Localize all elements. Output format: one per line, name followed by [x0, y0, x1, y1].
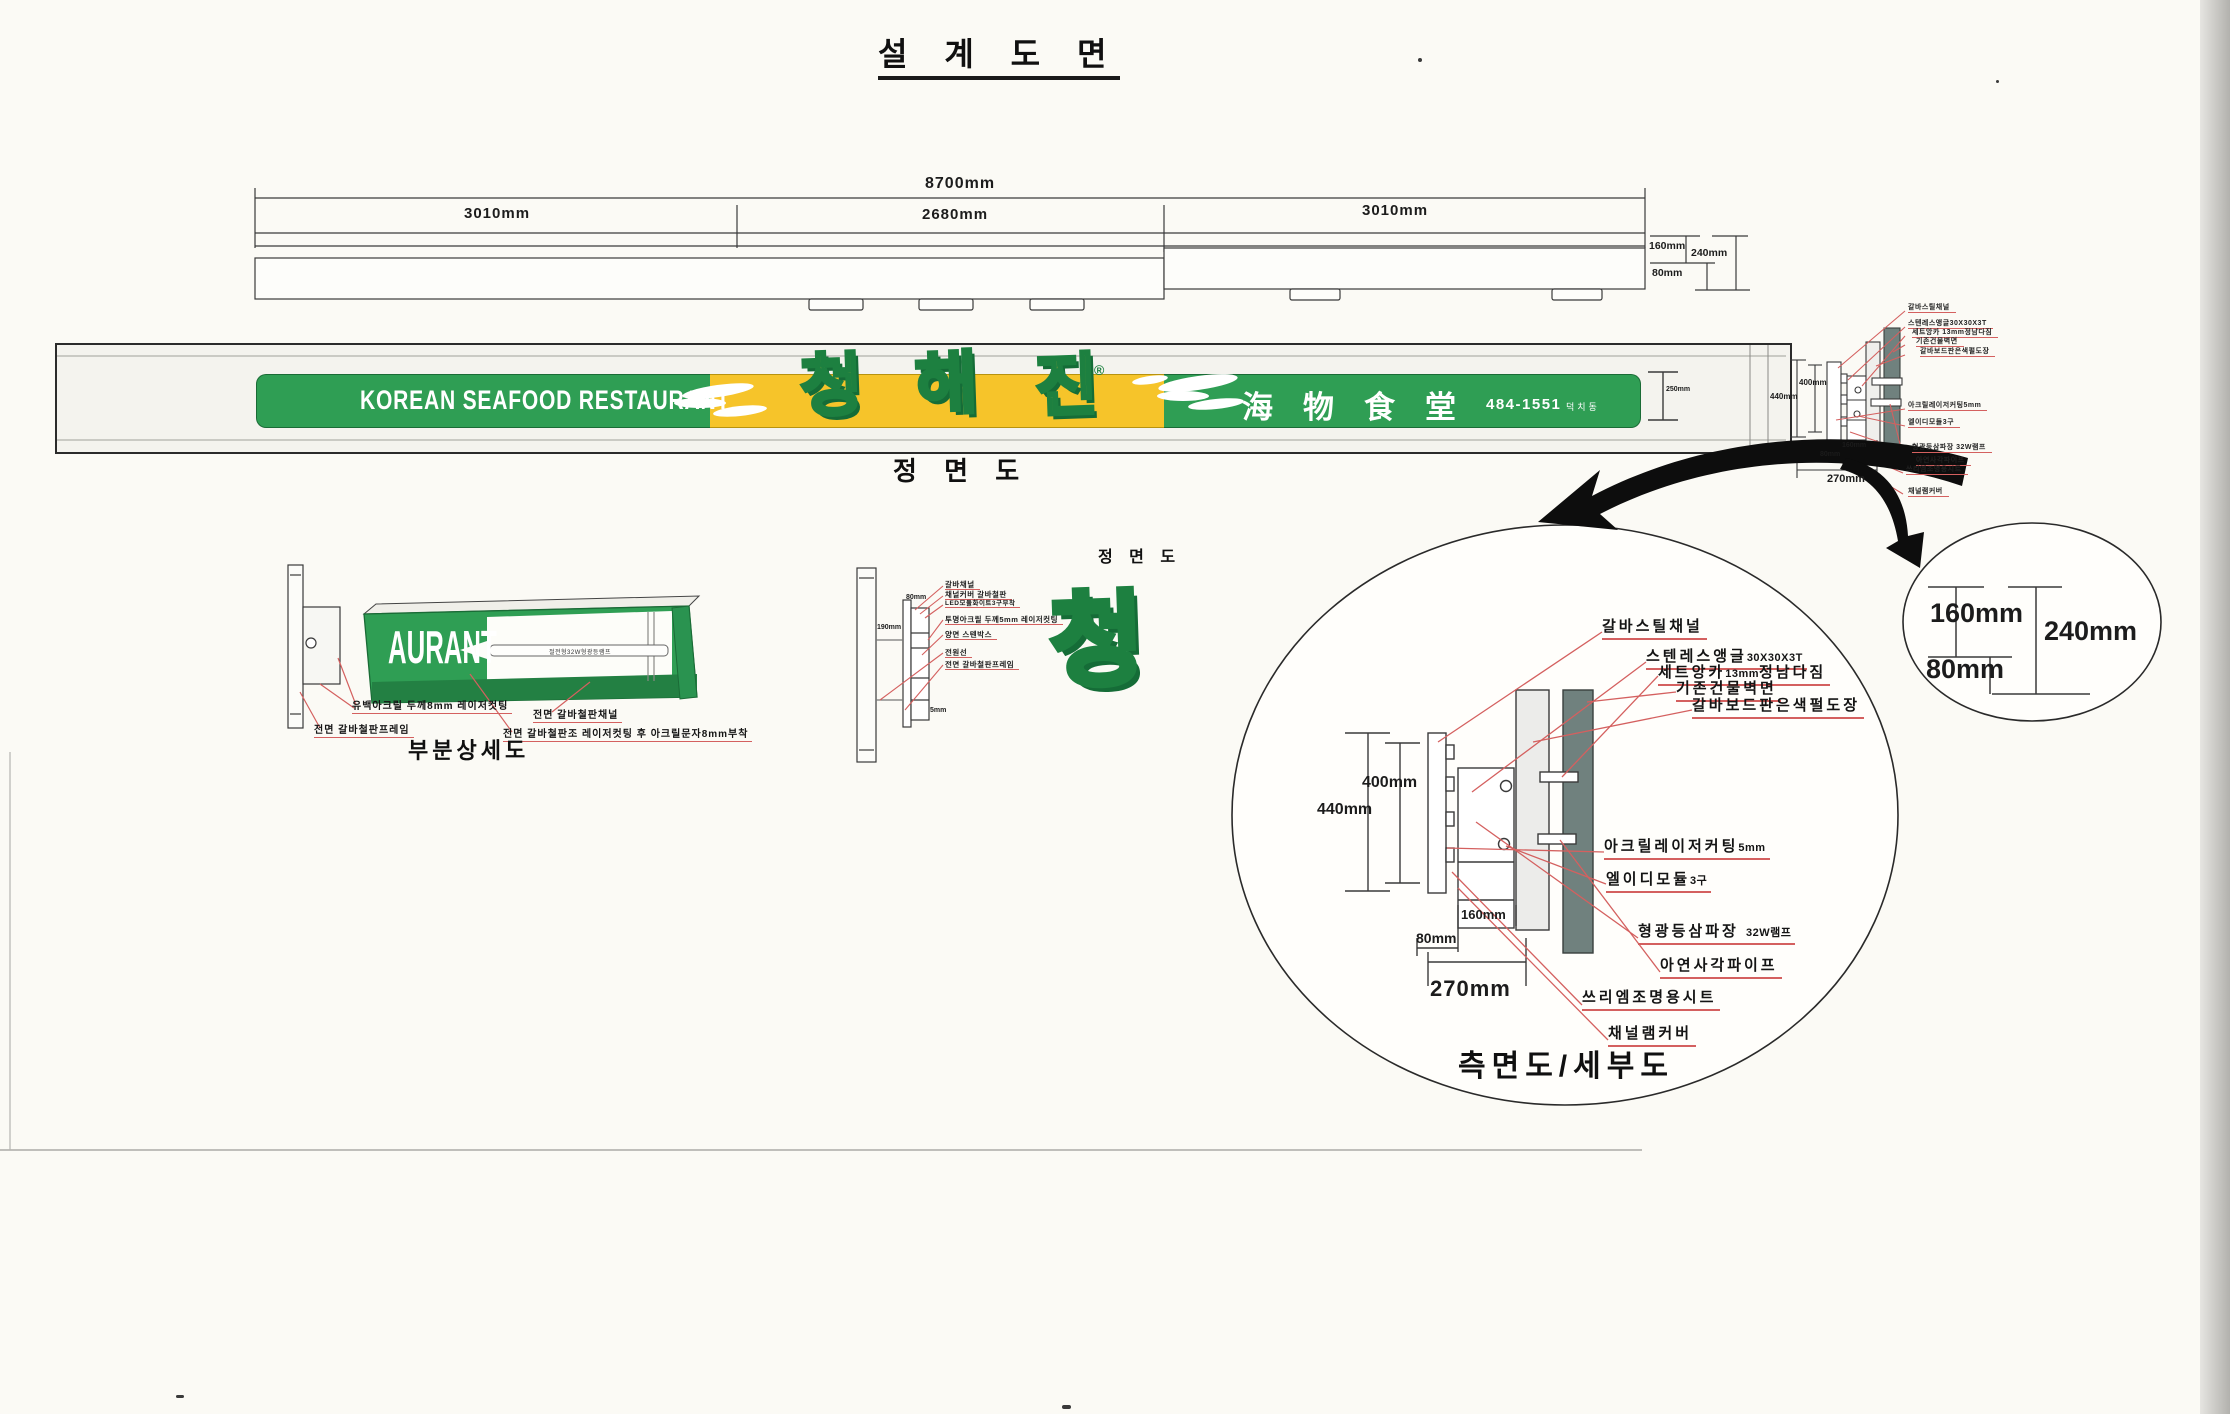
channel-80-dim: 80mm: [906, 594, 926, 601]
side-detail-title: 측면도/세부도: [1458, 1052, 1674, 1082]
side-label: 갈바스틸채널: [1602, 619, 1707, 640]
side-label-text: 갈바보드판은색펄도장: [1692, 697, 1860, 714]
side-label: 아크릴레이저커팅5mm: [1604, 839, 1770, 860]
page-title: 설 계 도 면: [878, 38, 1120, 80]
side-label-text: 엘이디모듈: [1606, 871, 1690, 888]
channel-label: 전면 갈바철판프레임: [945, 661, 1019, 670]
partial-label-frame: 전면 갈바철판프레임: [314, 725, 414, 738]
registered-mark: ®: [1094, 362, 1104, 378]
side-label: 갈바보드판은색펄도장: [1692, 698, 1864, 719]
channel-190-dim: 190mm: [877, 624, 901, 631]
side-160-dim: 160mm: [1461, 908, 1506, 921]
plan-240-dim: 240mm: [1691, 248, 1727, 259]
side-label: 쓰리엠조명용시트: [1582, 990, 1720, 1011]
side-label-suffix: 3구: [1690, 875, 1707, 887]
corner-80-dim: 80mm: [1926, 656, 2004, 683]
mini-label: 아연사각파이프: [1916, 457, 1971, 466]
paper-edge: [2200, 0, 2230, 1414]
mini-label: 엘이디모듈3구: [1908, 419, 1960, 428]
cloud-swoosh-right: [1132, 371, 1245, 412]
partial-label-cutting: 전면 갈바철판조 레이저컷팅 후 아크릴문자8mm부착: [503, 729, 752, 742]
side-400-dim: 400mm: [1362, 775, 1417, 791]
plan-160-dim: 160mm: [1649, 241, 1685, 252]
mini-label: 기존건물벽면: [1916, 338, 1964, 347]
partial-panel-text: AURANT: [388, 620, 497, 674]
side-label-text: 형광등삼파장: [1638, 923, 1739, 940]
mini-400-dim: 400mm: [1799, 379, 1827, 387]
corner-160-dim: 160mm: [1930, 600, 2023, 627]
channel-label: 투명아크릴 두께5mm 레이저컷팅: [945, 616, 1063, 625]
side-label-text: 아크릴레이저커팅: [1604, 838, 1738, 855]
side-label-suffix: 32W램프: [1746, 927, 1791, 939]
side-label-text: 스텐레스앵글: [1646, 648, 1747, 665]
channel-label: 양면 스텐박스: [945, 631, 997, 640]
sign-phone-text: 484-1551: [1486, 396, 1561, 413]
sign-korean-char-1: 청: [799, 351, 864, 421]
channel-label: 채널커버 갈바철판: [945, 591, 1012, 600]
channel-letter: 청: [1048, 588, 1145, 693]
scan-speck: [1996, 80, 1999, 83]
channel-5-dim: 5mm: [930, 707, 946, 714]
side-label-text: 기존건물벽면: [1676, 680, 1777, 697]
partial-label-acrylic: 유백아크릴 두께8mm 레이저컷팅: [352, 701, 512, 714]
side-label-text: 채널램커버: [1608, 1025, 1692, 1042]
side-label: 채널램커버: [1608, 1026, 1696, 1047]
sign-english-text: KOREAN SEAFOOD RESTAURANT: [360, 385, 730, 416]
mini-label: 형광등삼파장 32W램프: [1912, 444, 1992, 453]
channel-detail-label: 정 면 도: [1098, 550, 1181, 566]
side-label-text: 갈바스틸채널: [1602, 618, 1703, 635]
side-label-suffix: 13mm: [1725, 668, 1759, 680]
mini-label: 아크릴레이저커팅5mm: [1908, 402, 1987, 411]
front-view-label: 정 면 도: [893, 458, 1029, 484]
mini-label: 쓰리엠조명용시트: [1906, 466, 1968, 475]
mini-80-dim: 80mm: [1820, 451, 1840, 458]
partial-detail-title: 부분상세도: [408, 740, 529, 762]
sign-korean-char-2: 해: [914, 349, 979, 419]
side-label-tail: 정남다짐: [1759, 664, 1826, 681]
mini-label: 갈바보드판은색펄도장: [1920, 348, 1995, 357]
plan-seg-center-dim: 2680mm: [922, 207, 988, 222]
side-80-dim: 80mm: [1416, 931, 1456, 945]
side-label: 아연사각파이프: [1660, 958, 1782, 979]
side-label-suffix: 30X30X3T: [1747, 652, 1803, 664]
plan-seg-left-dim: 3010mm: [464, 206, 530, 221]
channel-label: LED모듈화이트3구부착: [945, 600, 1020, 608]
scan-speck: [1418, 58, 1422, 62]
drawing-linework: [0, 0, 2230, 1414]
mini-label: 세트앙카 13mm정남다짐: [1912, 329, 1998, 338]
sign-phone-suffix: 덕치동: [1566, 400, 1600, 413]
mini-270-dim: 270mm: [1827, 474, 1865, 485]
side-label: 형광등삼파장 32W램프: [1638, 924, 1795, 945]
mini-label: 스텐레스앵글30X30X3T: [1908, 320, 1993, 329]
side-label-text: 쓰리엠조명용시트: [1582, 989, 1716, 1006]
scan-speck: [176, 1395, 184, 1398]
plan-seg-right-dim: 3010mm: [1362, 203, 1428, 218]
sign-korean-char-3: 진: [1034, 351, 1099, 421]
side-440-dim: 440mm: [1317, 802, 1372, 818]
mini-label: 갈바스틸채널: [1908, 304, 1956, 313]
partial-lamp-text: 절전형32W형광등램프: [492, 647, 668, 656]
corner-240-dim: 240mm: [2044, 618, 2137, 645]
side-270-dim: 270mm: [1430, 978, 1511, 1000]
plan-80-dim: 80mm: [1652, 268, 1682, 279]
side-label-text: 아연사각파이프: [1660, 957, 1778, 974]
channel-label: 갈바채널: [945, 581, 980, 590]
plan-total-dim: 8700mm: [925, 176, 995, 192]
side-label-suffix: 5mm: [1738, 842, 1765, 854]
channel-label: 전원선: [945, 649, 972, 658]
side-label-text: 세트앙카: [1658, 664, 1725, 681]
scan-speck: [1062, 1405, 1071, 1409]
sign-height-dim: 250mm: [1666, 386, 1690, 393]
blueprint-page: 설 계 도 면 8700mm 3010mm 2680mm 3010mm 160m…: [0, 0, 2230, 1414]
mini-label: 채널램커버: [1908, 488, 1949, 497]
partial-label-channel: 전면 갈바철판채널: [533, 710, 622, 723]
mini-160-dim: 160mm: [1842, 442, 1866, 449]
side-label: 엘이디모듈3구: [1606, 872, 1711, 893]
mini-440-dim: 440mm: [1770, 393, 1798, 401]
sign-hanja-text: 海物食堂: [1242, 382, 1486, 427]
